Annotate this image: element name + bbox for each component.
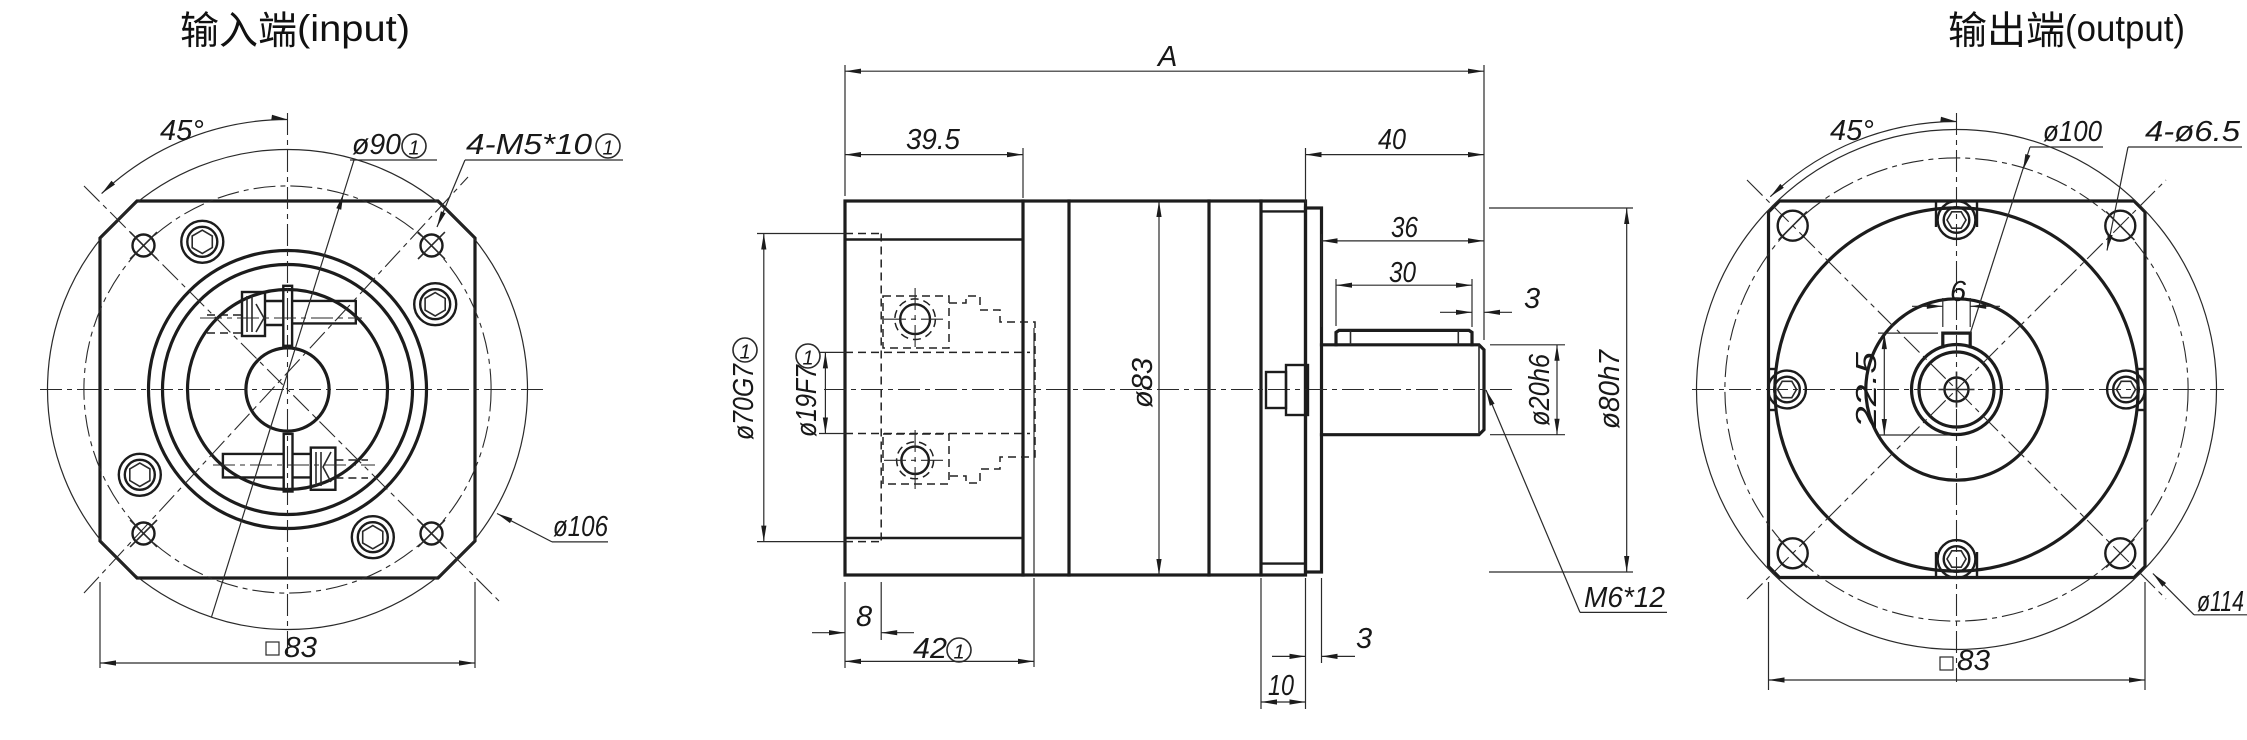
- svg-text:ø83: ø83: [1127, 358, 1159, 408]
- svg-text:3: 3: [1524, 283, 1540, 315]
- svg-text:30: 30: [1389, 257, 1416, 289]
- svg-text:ø90: ø90: [352, 129, 401, 161]
- svg-text:1: 1: [602, 138, 613, 160]
- svg-text:8: 8: [856, 601, 872, 633]
- svg-text:6: 6: [1950, 276, 1967, 308]
- svg-text:10: 10: [1268, 670, 1294, 702]
- svg-text:ø106: ø106: [553, 511, 609, 543]
- svg-text:ø80h7: ø80h7: [1594, 348, 1626, 429]
- svg-text:39.5: 39.5: [906, 124, 961, 156]
- svg-text:83: 83: [284, 632, 317, 664]
- svg-text:ø114: ø114: [2197, 586, 2244, 618]
- svg-text:40: 40: [1378, 124, 1406, 156]
- svg-text:45°: 45°: [1830, 115, 1874, 147]
- svg-text:ø20h6: ø20h6: [1524, 353, 1556, 426]
- svg-text:(output): (output): [2065, 8, 2185, 49]
- svg-text:A: A: [1156, 41, 1177, 73]
- svg-text:83: 83: [1957, 645, 1990, 677]
- svg-text:45°: 45°: [160, 115, 204, 147]
- svg-text:1: 1: [739, 342, 750, 364]
- svg-text:4-ø6.5: 4-ø6.5: [2145, 116, 2241, 148]
- svg-text:ø70G7: ø70G7: [728, 362, 760, 440]
- svg-text:1: 1: [408, 138, 419, 160]
- svg-text:1: 1: [953, 642, 964, 664]
- svg-text:ø100: ø100: [2043, 116, 2102, 148]
- svg-text:4-M5*10: 4-M5*10: [466, 129, 592, 161]
- svg-text:(input): (input): [297, 8, 410, 49]
- svg-text:36: 36: [1391, 212, 1419, 244]
- svg-text:ø19F7: ø19F7: [791, 363, 823, 437]
- svg-text:3: 3: [1356, 623, 1372, 655]
- svg-text:M6*12: M6*12: [1584, 582, 1665, 614]
- svg-text:1: 1: [802, 348, 813, 370]
- svg-text:42: 42: [913, 633, 947, 665]
- svg-text:22.5: 22.5: [1851, 351, 1883, 430]
